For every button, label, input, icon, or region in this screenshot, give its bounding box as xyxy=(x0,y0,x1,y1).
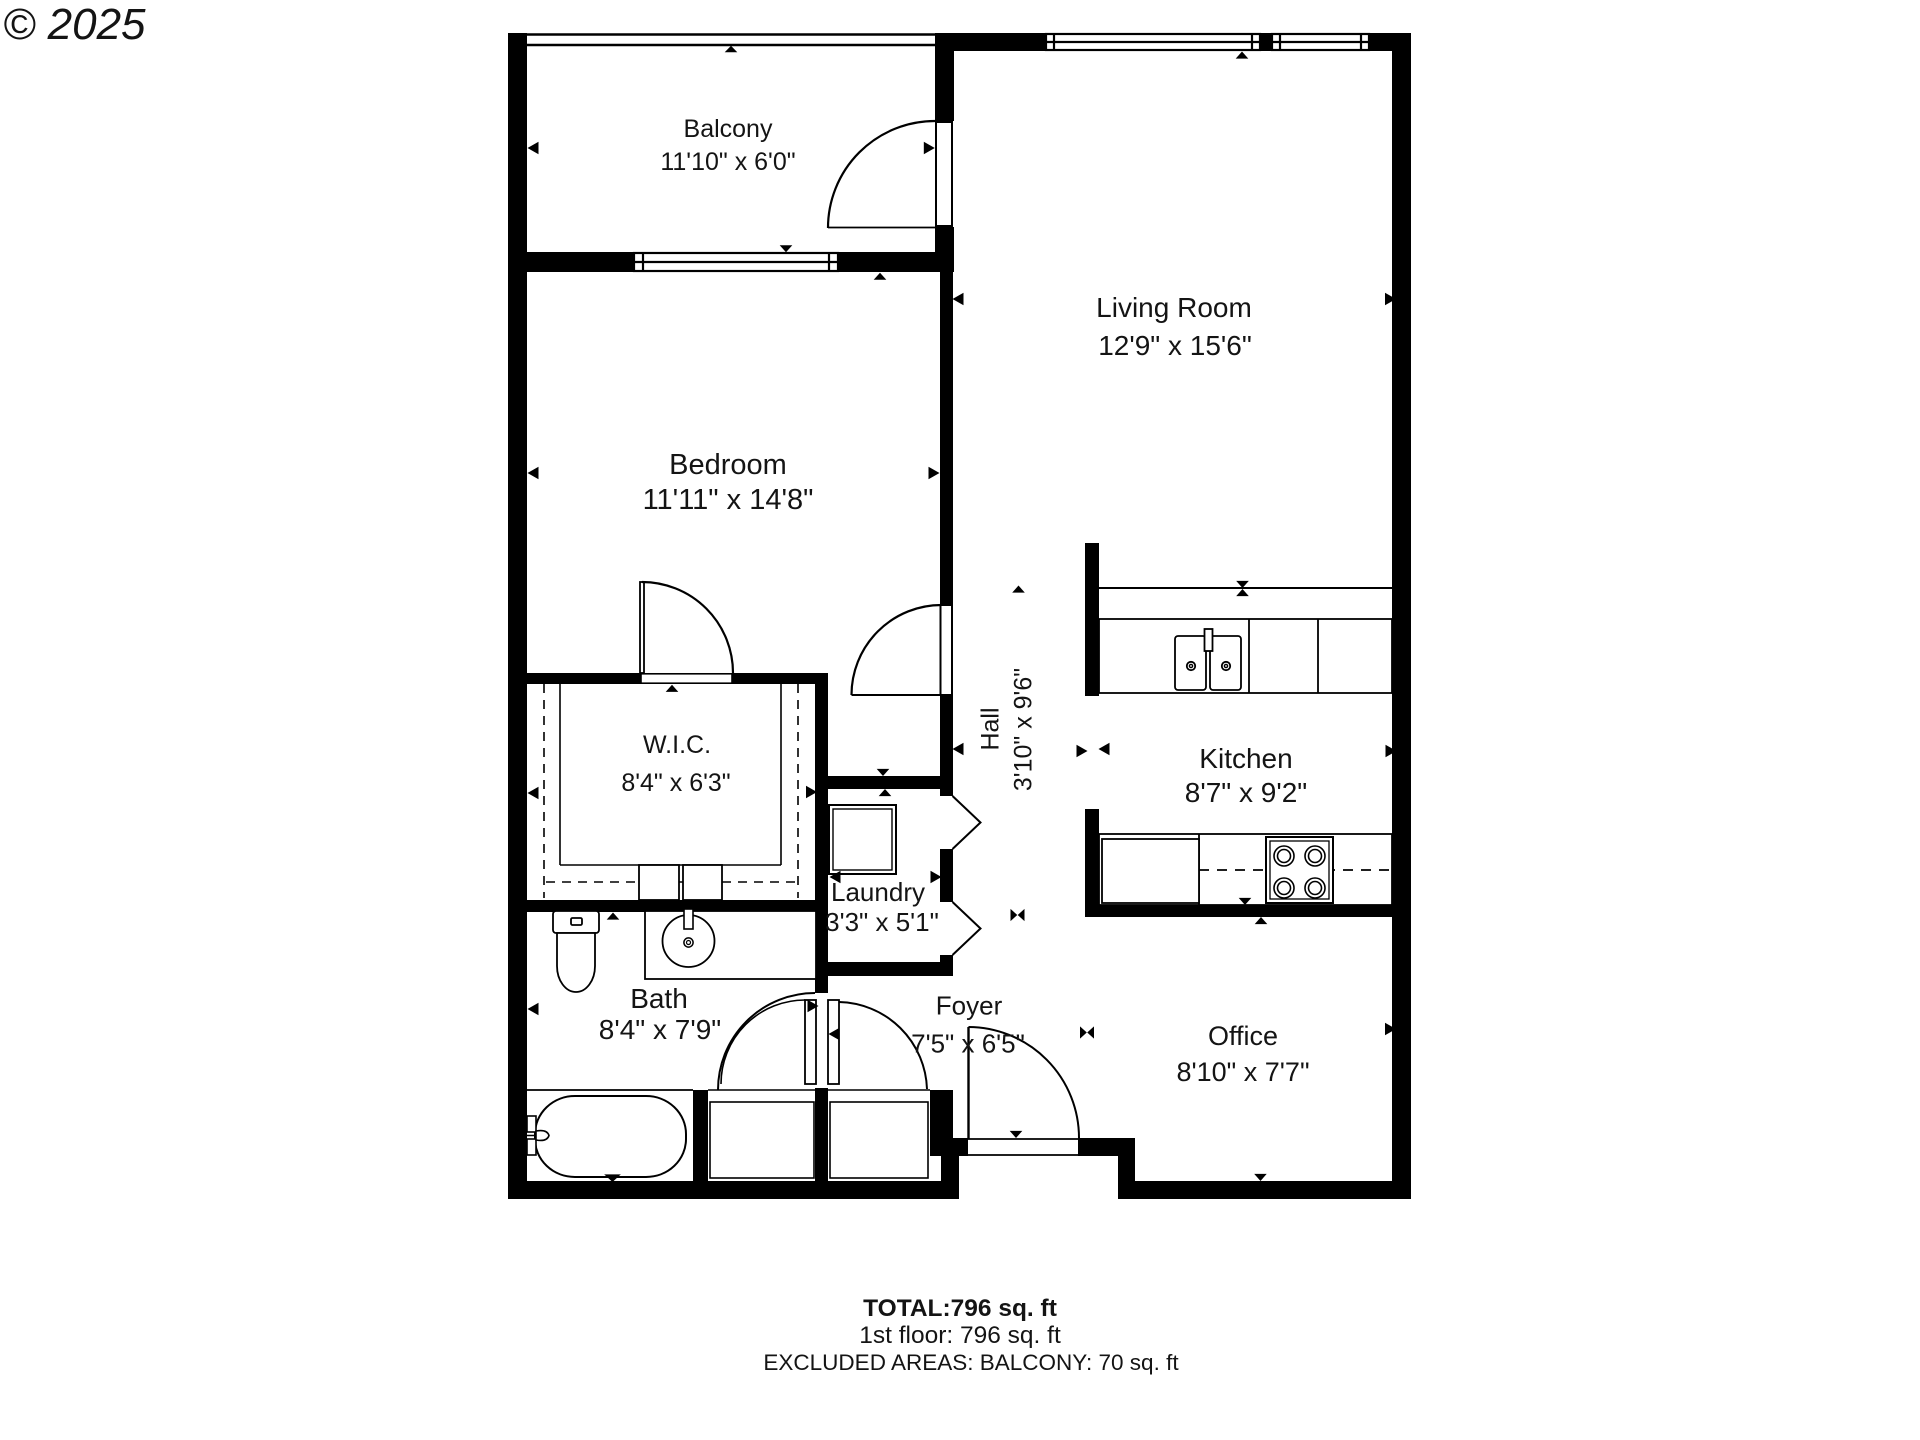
svg-text:W.I.C.: W.I.C. xyxy=(643,731,711,759)
svg-text:12'9" x 15'6": 12'9" x 15'6" xyxy=(1098,330,1252,361)
svg-text:Office: Office xyxy=(1208,1021,1278,1051)
svg-text:7'5" x 6'5": 7'5" x 6'5" xyxy=(911,1029,1025,1059)
svg-text:Balcony: Balcony xyxy=(684,115,773,143)
svg-text:Living Room: Living Room xyxy=(1096,292,1252,323)
svg-text:8'7" x 9'2": 8'7" x 9'2" xyxy=(1185,777,1307,808)
svg-text:3'3" x 5'1": 3'3" x 5'1" xyxy=(825,907,939,937)
svg-text:Bedroom: Bedroom xyxy=(669,449,787,481)
svg-text:8'4" x 6'3": 8'4" x 6'3" xyxy=(621,769,730,797)
svg-text:EXCLUDED AREAS: BALCONY: 70 sq: EXCLUDED AREAS: BALCONY: 70 sq. ft xyxy=(763,1350,1179,1375)
svg-text:© 2025: © 2025 xyxy=(3,0,146,49)
svg-text:8'4" x 7'9": 8'4" x 7'9" xyxy=(599,1014,721,1045)
svg-text:TOTAL:796 sq. ft: TOTAL:796 sq. ft xyxy=(863,1295,1057,1322)
svg-text:3'10" x 9'6": 3'10" x 9'6" xyxy=(1010,668,1038,791)
svg-text:Foyer: Foyer xyxy=(936,991,1003,1021)
svg-text:8'10" x 7'7": 8'10" x 7'7" xyxy=(1176,1057,1309,1087)
svg-text:1st floor: 796 sq. ft: 1st floor: 796 sq. ft xyxy=(859,1322,1061,1349)
svg-text:11'11" x 14'8": 11'11" x 14'8" xyxy=(643,484,814,516)
svg-text:Bath: Bath xyxy=(630,983,688,1014)
svg-text:Kitchen: Kitchen xyxy=(1199,743,1292,774)
svg-text:11'10" x 6'0": 11'10" x 6'0" xyxy=(660,148,795,176)
svg-text:Laundry: Laundry xyxy=(831,877,925,907)
svg-text:Hall: Hall xyxy=(977,707,1005,750)
